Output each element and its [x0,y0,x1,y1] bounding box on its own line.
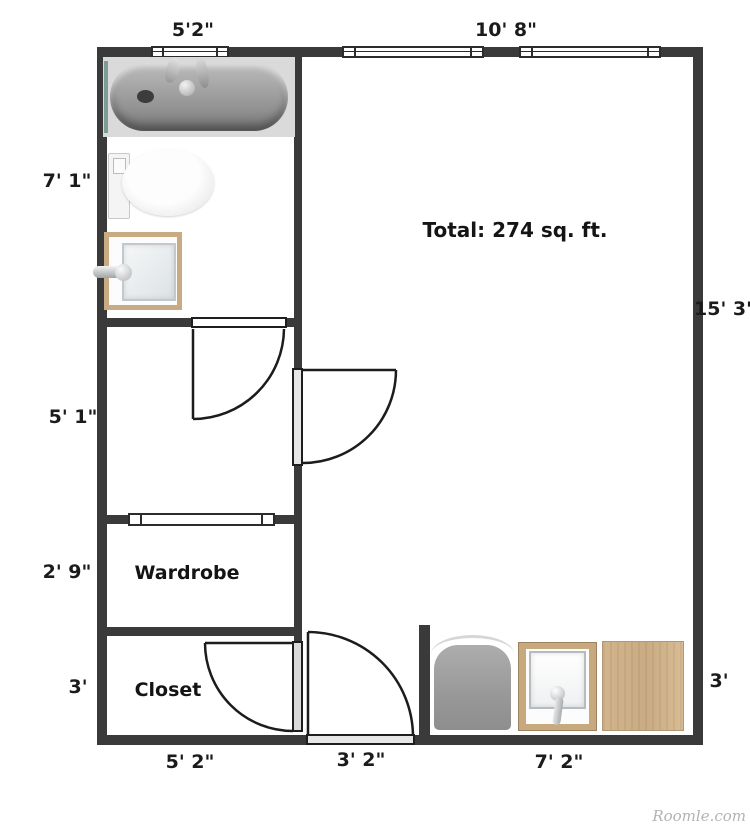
dim-label-bottom-closet: 5' 2" [166,751,215,773]
dim-label-right-main: 15' 3" [694,298,750,320]
closet-door-swing [205,643,293,731]
bathtub [103,57,295,137]
utility-sink [518,642,597,731]
room-label-closet: Closet [135,679,202,701]
dim-label-left-hall: 5' 1" [49,406,98,428]
armchair [434,645,511,730]
room-label-wardrobe: Wardrobe [135,562,240,584]
wooden-table [602,641,684,731]
washbasin [104,232,182,310]
bathtub-tile-strip [104,61,108,133]
dim-label-top-bathroom: 5'2" [172,19,214,41]
bathtub-drain [137,90,154,103]
roomle-watermark: Roomle.com [652,807,746,825]
entry-door-swing [308,632,413,736]
main-room-door-swing [303,370,396,463]
dim-label-bottom-utility: 7' 2" [535,751,584,773]
dim-label-left-bathroom: 7' 1" [43,170,92,192]
dim-label-right-utility: 3' [709,670,728,692]
washbasin-knob [115,264,132,281]
bathroom-door-swing [193,329,284,419]
total-area-label: Total: 274 sq. ft. [423,218,608,242]
dim-label-left-wardrobe: 2' 9" [43,561,92,583]
dim-label-bottom-entry: 3' 2" [337,749,386,771]
dim-label-left-closet: 3' [68,676,87,698]
toilet [122,149,214,216]
dim-label-top-main: 10' 8" [475,19,537,41]
bathtub-knob [179,80,195,96]
floor-plan: 5'2" 10' 8" 7' 1" 5' 1" 2' 9" 3' 15' 3" … [0,0,750,829]
